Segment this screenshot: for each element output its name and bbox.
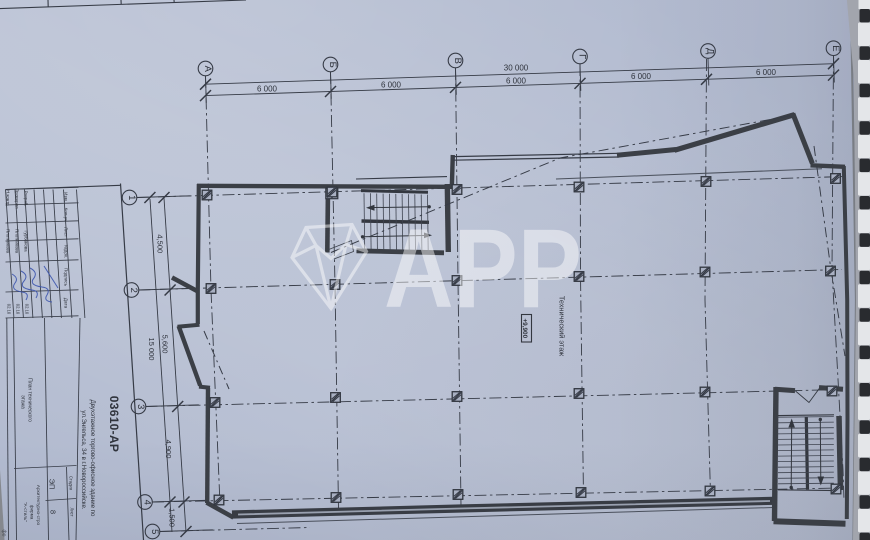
- svg-text:ул.Энгельса, 34 в г.Новороссий: ул.Энгельса, 34 в г.Новороссийске.: [80, 410, 87, 510]
- svg-text:Дата: Дата: [64, 298, 69, 309]
- svg-text:02.10: 02.10: [25, 304, 30, 315]
- svg-text:Архитектурно-стро: Архитектурно-стро: [36, 485, 41, 526]
- svg-text:5: 5: [150, 529, 161, 534]
- svg-text:APP: APP: [384, 206, 582, 331]
- svg-text:ЭП: ЭП: [48, 479, 57, 490]
- svg-text:Стадия: Стадия: [69, 476, 74, 490]
- svg-text:Лист: Лист: [70, 507, 75, 516]
- svg-text:Разраб.: Разраб.: [24, 191, 29, 207]
- svg-text:2: 2: [129, 288, 140, 293]
- svg-text:фирма: фирма: [30, 505, 35, 520]
- svg-text:Н.контр.: Н.контр.: [6, 190, 11, 207]
- svg-text:6 000: 6 000: [257, 85, 278, 94]
- svg-text:6 000: 6 000: [381, 80, 402, 89]
- svg-text:3: 3: [136, 404, 147, 409]
- svg-text:А: А: [203, 66, 214, 73]
- svg-text:1,500: 1,500: [168, 508, 177, 527]
- svg-text:4,500: 4,500: [156, 234, 165, 253]
- svg-text:№док.: №док.: [64, 245, 69, 258]
- svg-text:Плотникова: Плотникова: [15, 229, 20, 254]
- svg-text:02.10: 02.10: [16, 304, 21, 315]
- svg-text:"А-стиль": "А-стиль": [23, 502, 28, 522]
- svg-text:6 000: 6 000: [506, 76, 527, 85]
- svg-text:02.10: 02.10: [7, 304, 12, 315]
- svg-text:Лист: Лист: [64, 227, 69, 238]
- svg-text:4: 4: [143, 500, 154, 505]
- svg-text:фо: фо: [1, 530, 7, 537]
- svg-text:30 000: 30 000: [504, 64, 529, 73]
- svg-text:Плотникова: Плотникова: [6, 229, 11, 254]
- svg-text:Г: Г: [578, 54, 589, 59]
- svg-text:Подпись: Подпись: [64, 268, 69, 287]
- svg-text:Проверил: Проверил: [15, 188, 20, 209]
- svg-text:15 000: 15 000: [147, 338, 156, 361]
- svg-text:Кол.уч: Кол.уч: [64, 208, 69, 222]
- svg-text:План технического: План технического: [27, 378, 33, 422]
- svg-text:Д: Д: [706, 48, 717, 55]
- svg-text:1: 1: [127, 195, 138, 200]
- svg-text:5,600: 5,600: [161, 335, 170, 354]
- svg-text:этажа: этажа: [20, 395, 26, 409]
- svg-text:4,900: 4,900: [164, 440, 173, 459]
- svg-text:Гурбанова: Гурбанова: [24, 230, 29, 252]
- svg-text:6 000: 6 000: [756, 68, 777, 77]
- svg-text:Изм.: Изм.: [64, 192, 69, 202]
- svg-text:8: 8: [49, 510, 58, 514]
- svg-text:Двухэтажное торгово-офисное з: Двухэтажное торгово-офисное здание по: [89, 400, 96, 517]
- svg-text:Е: Е: [831, 45, 842, 51]
- svg-text:В: В: [453, 58, 464, 64]
- svg-text:Б: Б: [328, 62, 339, 68]
- svg-text:03610-АР: 03610-АР: [107, 396, 121, 452]
- svg-text:6 000: 6 000: [631, 72, 652, 81]
